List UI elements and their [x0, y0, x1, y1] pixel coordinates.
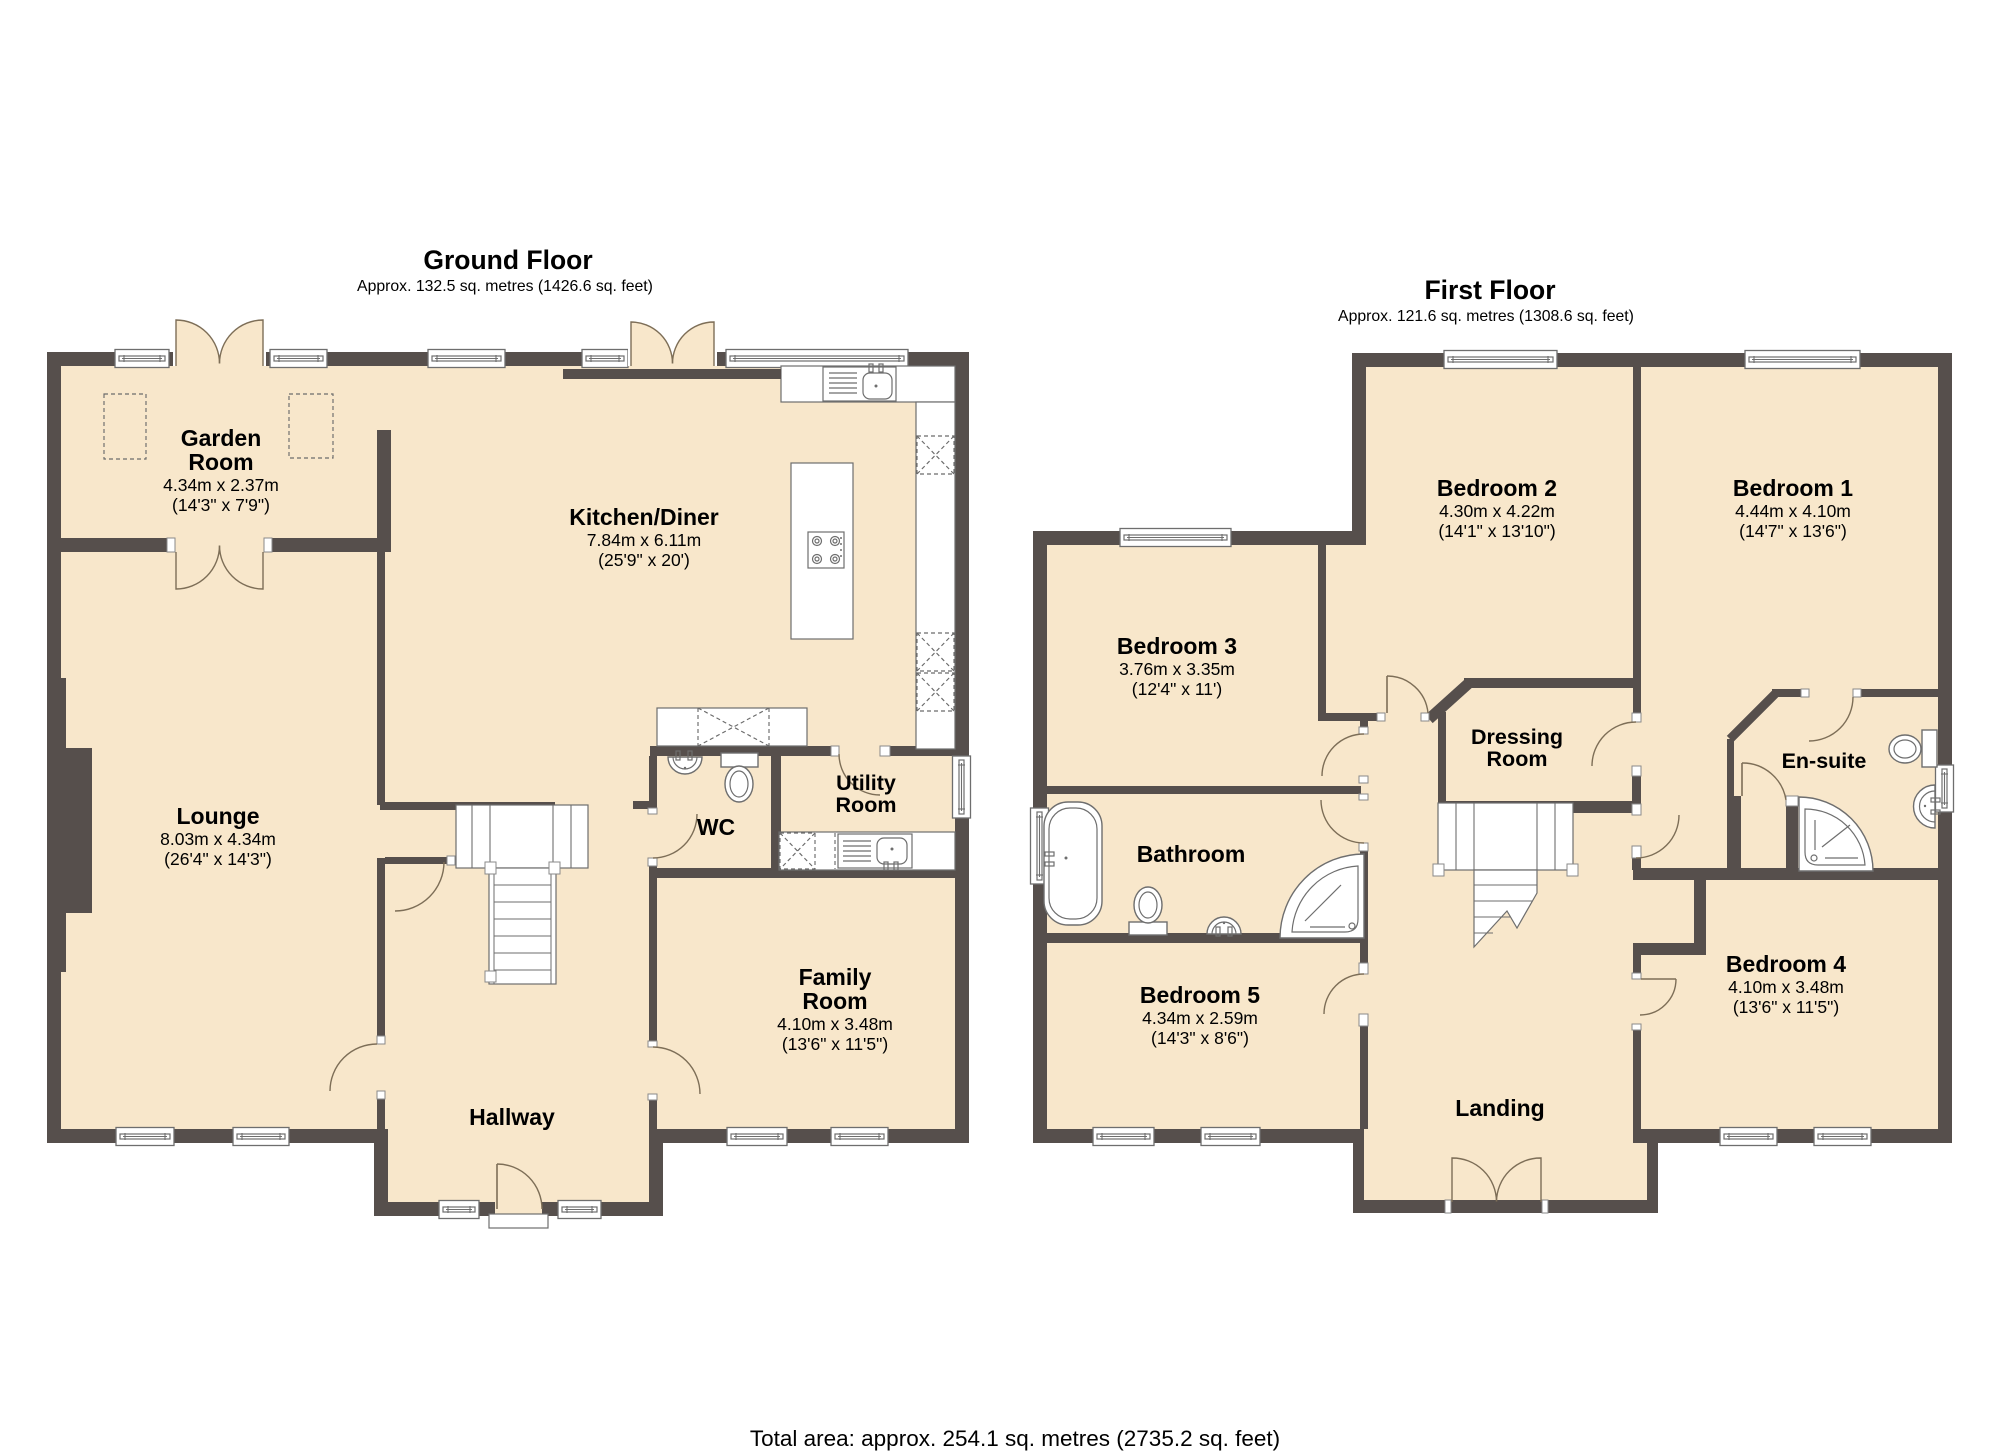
svg-text:(14'7" x 13'6"): (14'7" x 13'6")	[1739, 521, 1847, 541]
svg-text:4.10m x 3.48m: 4.10m x 3.48m	[777, 1014, 893, 1034]
svg-text:(26'4" x 14'3"): (26'4" x 14'3")	[164, 849, 272, 869]
svg-text:(14'3" x 8'6"): (14'3" x 8'6")	[1151, 1028, 1249, 1048]
svg-text:Lounge: Lounge	[176, 803, 259, 829]
svg-text:(14'1" x 13'10"): (14'1" x 13'10")	[1438, 521, 1555, 541]
svg-text:Room: Room	[836, 793, 897, 817]
svg-text:Bathroom: Bathroom	[1137, 841, 1246, 867]
svg-text:(14'3" x 7'9"): (14'3" x 7'9")	[172, 495, 270, 515]
svg-text:Bedroom 1: Bedroom 1	[1733, 475, 1853, 501]
svg-text:Approx. 132.5 sq. metres (1426: Approx. 132.5 sq. metres (1426.6 sq. fee…	[357, 278, 653, 295]
svg-text:7.84m x 6.11m: 7.84m x 6.11m	[587, 530, 701, 550]
svg-text:(25'9" x 20'): (25'9" x 20')	[598, 550, 690, 570]
svg-text:Room: Room	[188, 449, 253, 475]
svg-text:Bedroom 5: Bedroom 5	[1140, 982, 1260, 1008]
svg-text:3.76m x 3.35m: 3.76m x 3.35m	[1119, 659, 1235, 679]
svg-text:En-suite: En-suite	[1782, 749, 1867, 773]
svg-text:Landing: Landing	[1455, 1095, 1544, 1121]
svg-text:4.10m x 3.48m: 4.10m x 3.48m	[1728, 977, 1844, 997]
svg-text:Ground Floor: Ground Floor	[423, 245, 592, 275]
svg-text:(12'4" x 11'): (12'4" x 11')	[1132, 679, 1222, 699]
svg-text:First Floor: First Floor	[1424, 275, 1555, 305]
svg-text:Bedroom 2: Bedroom 2	[1437, 475, 1557, 501]
svg-text:Utility: Utility	[836, 771, 896, 795]
svg-text:4.34m x 2.59m: 4.34m x 2.59m	[1142, 1008, 1258, 1028]
svg-text:Approx. 121.6 sq. metres (1308: Approx. 121.6 sq. metres (1308.6 sq. fee…	[1338, 308, 1634, 325]
svg-text:Room: Room	[802, 988, 867, 1014]
svg-text:4.44m x 4.10m: 4.44m x 4.10m	[1735, 501, 1851, 521]
svg-text:Garden: Garden	[181, 425, 262, 451]
svg-text:Dressing: Dressing	[1471, 725, 1563, 749]
svg-text:Hallway: Hallway	[469, 1104, 555, 1130]
svg-text:Total area: approx. 254.1 sq.: Total area: approx. 254.1 sq. metres (27…	[750, 1426, 1280, 1451]
svg-text:Room: Room	[1487, 747, 1548, 771]
svg-text:(13'6" x 11'5"): (13'6" x 11'5")	[782, 1034, 888, 1054]
svg-text:Family: Family	[799, 964, 872, 990]
svg-text:Bedroom 3: Bedroom 3	[1117, 633, 1237, 659]
svg-text:8.03m x 4.34m: 8.03m x 4.34m	[160, 829, 276, 849]
svg-text:4.34m x 2.37m: 4.34m x 2.37m	[163, 475, 279, 495]
svg-text:WC: WC	[697, 814, 735, 840]
svg-text:4.30m x 4.22m: 4.30m x 4.22m	[1439, 501, 1555, 521]
svg-text:(13'6" x 11'5"): (13'6" x 11'5")	[1733, 997, 1839, 1017]
svg-text:Kitchen/Diner: Kitchen/Diner	[569, 504, 719, 530]
svg-text:Bedroom 4: Bedroom 4	[1726, 951, 1846, 977]
